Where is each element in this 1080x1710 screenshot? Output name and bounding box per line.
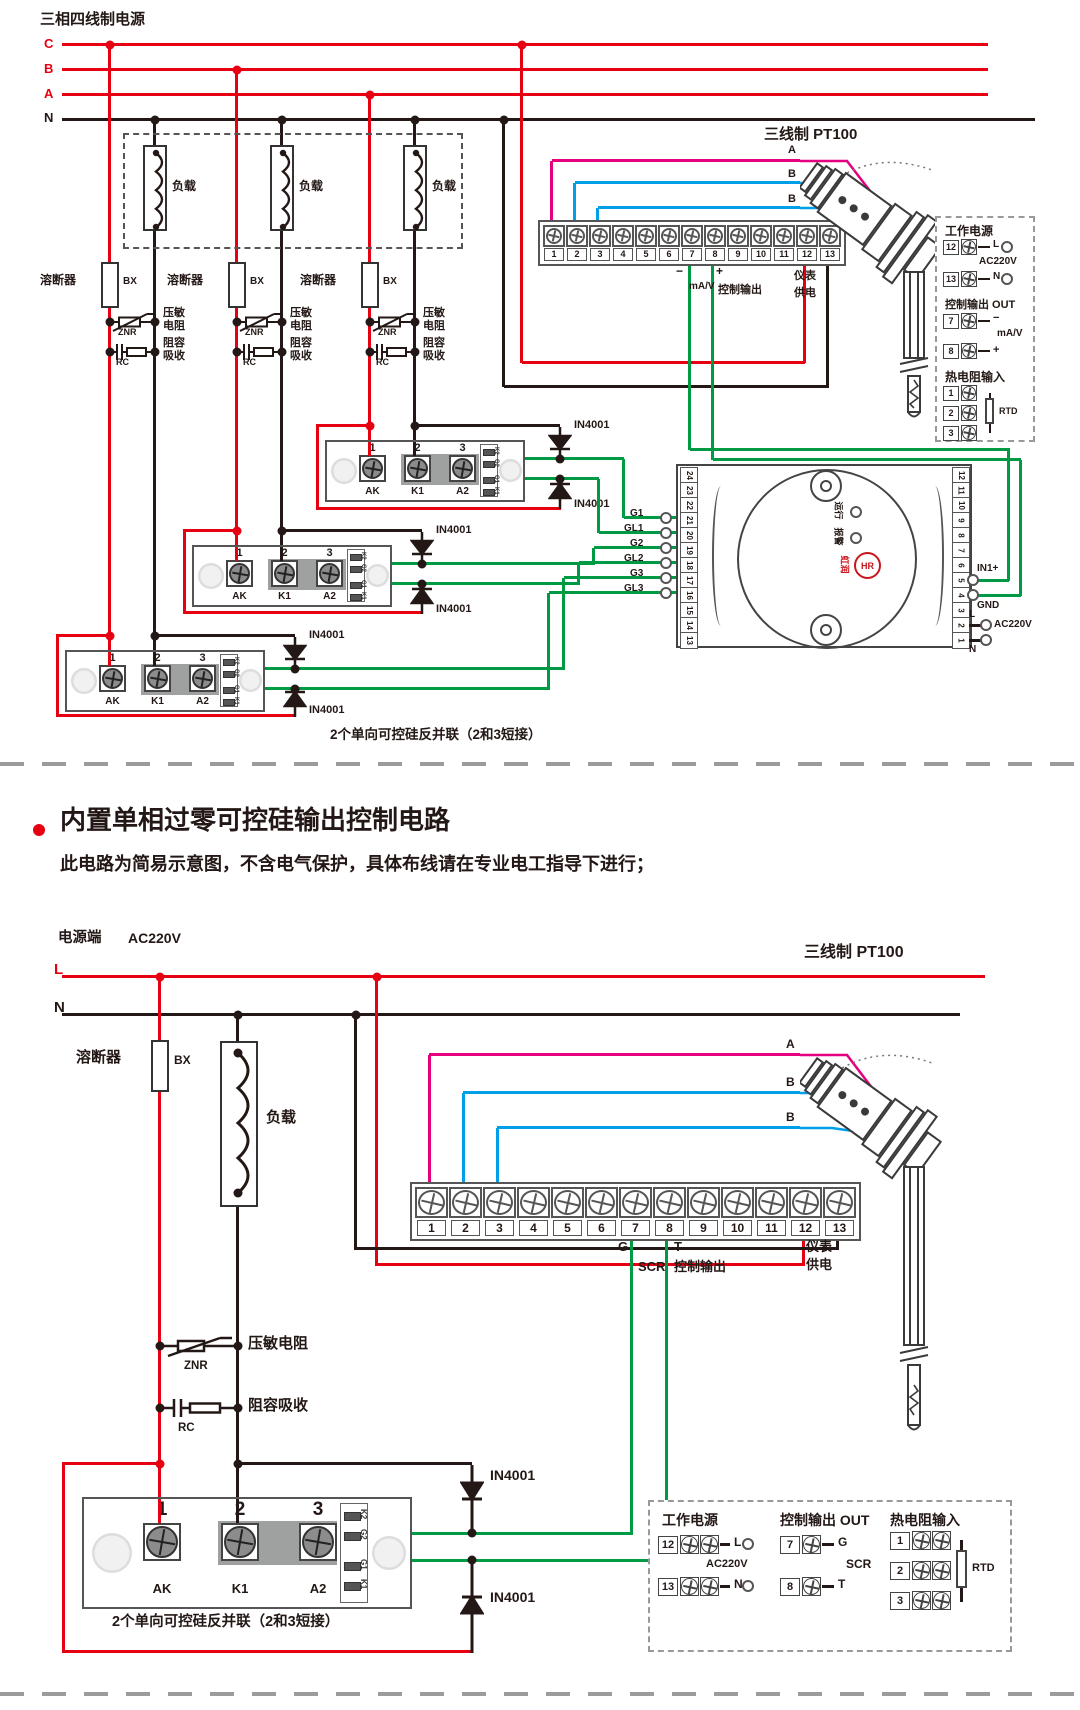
screw-terminal-icon — [612, 225, 634, 247]
screw-terminal-icon — [359, 455, 386, 482]
wire-segment — [280, 230, 283, 545]
varistor-tag: ZNR — [118, 327, 137, 337]
wire-segment — [316, 424, 370, 427]
wire-phase-b — [62, 68, 988, 71]
screw-terminal-icon — [415, 1187, 448, 1218]
legend-out-title: 控制输出 OUT — [780, 1510, 869, 1530]
screw-terminal-icon — [619, 1187, 652, 1218]
fuse-label: 溶断器 — [40, 274, 76, 287]
section-subtitle: 此电路为简易示意图，不含电气保护，具体布线请在专业电工指导下进行； — [60, 854, 654, 874]
panel-bracket — [924, 486, 944, 626]
varistor-label: 压敏 — [163, 307, 185, 319]
screw-terminal-icon — [961, 405, 977, 421]
legend-terminal-number: 1 — [943, 386, 959, 401]
gate-pin-label: K1 — [233, 697, 239, 705]
legend-panel: 工作电源 12 L AC220V 13 N 控制输出 OUT 7 − mA/V … — [935, 216, 1035, 442]
wire-segment — [977, 579, 1009, 582]
gate-pin-label: G2 — [359, 1529, 368, 1540]
controller-terminal: 20 — [681, 528, 697, 543]
controller-terminal: 18 — [681, 558, 697, 573]
top-diagram-title: 三相四线制电源 — [40, 12, 145, 29]
neutral-label: N — [44, 111, 53, 126]
terminal: 1 — [415, 1187, 448, 1236]
fuse-label: 溶断器 — [300, 274, 336, 287]
mount-hole — [71, 668, 97, 694]
wire-segment — [360, 562, 594, 565]
inductor-coil-icon — [271, 147, 295, 233]
mount-hole — [198, 563, 224, 589]
junction-dot — [106, 41, 115, 50]
legend-terminal-number: 7 — [780, 1536, 800, 1554]
screw-terminal-icon — [226, 560, 253, 587]
gate-pin-label: K1 — [359, 1579, 368, 1589]
module-terminal-name: A2 — [316, 591, 343, 602]
wire-segment — [579, 561, 662, 564]
legend-n-label: N — [993, 271, 1000, 282]
legend-terminal-number: 1 — [890, 1532, 910, 1550]
module-terminal-number: 3 — [189, 652, 216, 664]
output-plus-label: + — [716, 265, 723, 278]
wire-segment — [354, 1015, 357, 1250]
module-terminal-number: 1 — [359, 442, 386, 454]
screw-terminal-icon — [912, 1591, 931, 1610]
controller-terminal: 19 — [681, 543, 697, 558]
terminal-number: 6 — [659, 248, 679, 261]
junction-dot — [418, 580, 427, 589]
terminal: 7 — [619, 1187, 652, 1236]
screw-terminal-icon — [961, 425, 977, 441]
gate-connector — [660, 587, 672, 599]
gate-label: G3 — [630, 568, 643, 579]
module-terminal-name: AK — [143, 1581, 181, 1596]
varistor-label: 压敏电阻 — [248, 1336, 308, 1353]
gate-pin-label: G2 — [233, 669, 239, 677]
wire-segment — [822, 1543, 834, 1546]
wire-segment — [978, 278, 990, 280]
sensor-wire-label: A — [788, 144, 796, 156]
wire-live — [62, 975, 985, 978]
junction-dot — [556, 455, 565, 464]
legend-plus: + — [993, 344, 999, 356]
controller-terminal: 2 — [953, 618, 969, 633]
wire-segment — [413, 230, 416, 440]
connector — [980, 619, 992, 631]
sensor-wire-label: B — [788, 168, 796, 180]
fuse-icon — [361, 262, 379, 308]
wire-segment — [622, 459, 625, 518]
terminal-number: 7 — [621, 1220, 650, 1236]
junction-dot — [468, 1529, 477, 1538]
junction-dot — [278, 348, 287, 357]
terminal: 3 — [589, 225, 611, 261]
module-terminal-number: 2 — [221, 1499, 259, 1521]
junction-dot — [411, 422, 420, 431]
junction-dot — [151, 116, 160, 125]
junction-dot — [234, 1342, 243, 1351]
terminal: 5 — [635, 225, 657, 261]
terminal: 11 — [773, 225, 795, 261]
wire-segment — [316, 427, 319, 509]
legend-terminal-number: 8 — [943, 344, 959, 359]
gate-pin-label: G2 — [493, 459, 499, 467]
diode-label: IN4001 — [490, 1590, 535, 1606]
wire-segment — [62, 1465, 65, 1653]
controller-terminal: 1 — [953, 633, 969, 648]
mount-hole — [366, 564, 389, 587]
screw-terminal-icon — [543, 225, 565, 247]
terminal-number: 9 — [689, 1220, 718, 1236]
screw-terminal-icon — [802, 1577, 821, 1596]
scr-module: 1 2 3 AK K1 A2 K2 G2 G1 K1 — [65, 650, 265, 712]
wire-segment — [428, 1055, 431, 1182]
sensor-wire-label: B — [786, 1111, 795, 1124]
screw-terminal-icon — [721, 1187, 754, 1218]
legend-terminal-number: 2 — [943, 406, 959, 421]
module-terminal-name: K1 — [144, 696, 171, 707]
fuse-tag: BX — [383, 276, 397, 287]
controller-terminal: 21 — [681, 513, 697, 528]
screw-terminal-icon — [585, 1187, 618, 1218]
gate-connector — [660, 542, 672, 554]
varistor-tag: ZNR — [184, 1360, 208, 1373]
terminal-number: 3 — [485, 1220, 514, 1236]
wire-segment — [502, 120, 505, 387]
legend-minus: − — [993, 312, 999, 324]
screw-terminal-icon — [221, 1523, 259, 1561]
wire-segment — [564, 576, 662, 579]
screw-terminal-icon — [517, 1187, 550, 1218]
scr-module: 1 2 3 AK K1 A2 K2 G2 G1 K1 — [82, 1497, 412, 1609]
legend-rtd-title: 热电阻输入 — [890, 1510, 960, 1530]
controller-terminal: 7 — [953, 543, 969, 558]
junction-dot — [373, 973, 382, 982]
gate-label: GL3 — [624, 583, 643, 594]
load-3 — [403, 145, 427, 231]
screw-terminal-icon — [681, 225, 703, 247]
junction-dot — [366, 348, 375, 357]
module-terminal-number: 3 — [316, 547, 343, 559]
rc-label: 阻容 — [423, 337, 445, 349]
screw-terminal-icon — [961, 239, 977, 255]
mount-hole — [239, 669, 262, 692]
junction-dot — [234, 1460, 243, 1469]
brand-logo: HR — [854, 552, 881, 579]
wire-segment — [429, 1053, 800, 1056]
legend-terminal-number: 13 — [658, 1578, 678, 1596]
ac220v-label: AC220V — [994, 619, 1032, 630]
controller-left-terminals: 242322212019181716151413 — [680, 467, 698, 649]
controller-terminal: 13 — [681, 633, 697, 648]
junction-dot — [156, 1460, 165, 1469]
gate-pin-label: K2 — [360, 552, 366, 560]
fuse-icon — [151, 1040, 169, 1092]
wire-neutral — [62, 1013, 960, 1016]
terminal-number: 1 — [417, 1220, 446, 1236]
controller-terminal: 10 — [953, 498, 969, 513]
screw-terminal-icon — [299, 1523, 337, 1561]
terminal: 2 — [566, 225, 588, 261]
wire-segment — [235, 547, 238, 561]
module-terminal-number: 3 — [299, 1499, 337, 1521]
junction-dot — [411, 318, 420, 327]
module-terminal-number: 3 — [449, 442, 476, 454]
gate-label: G1 — [630, 508, 643, 519]
phase-b-label: B — [44, 62, 53, 77]
legend-terminal-number: 13 — [943, 272, 959, 287]
legend-scr-label: SCR — [846, 1558, 871, 1571]
terminal-number: 2 — [567, 248, 587, 261]
gate-pin-label: G1 — [360, 580, 366, 588]
gate-pin-label: K1 — [493, 487, 499, 495]
rc-label: 吸收 — [163, 350, 185, 362]
controller-terminal: 9 — [953, 513, 969, 528]
legend-unit: mA/V — [997, 328, 1023, 339]
phase-a-label: A — [44, 87, 53, 102]
junction-dot — [291, 665, 300, 674]
controller-right-terminals: 121110987654321 — [952, 467, 970, 649]
load-2 — [270, 145, 294, 231]
wire-segment — [280, 547, 283, 561]
module-terminal-name: AK — [226, 591, 253, 602]
wire-segment — [630, 1237, 633, 1535]
screw-terminal-icon — [727, 225, 749, 247]
wire-segment — [183, 532, 186, 613]
junction-dot — [106, 348, 115, 357]
fuse-tag: BX — [250, 276, 264, 287]
legend-terminal-number: 12 — [658, 1536, 678, 1554]
rc-label: 阻容吸收 — [248, 1398, 308, 1415]
diode-icon — [410, 584, 434, 614]
gate-label: G2 — [630, 538, 643, 549]
junction-dot — [233, 527, 242, 536]
screw-terminal-icon — [750, 225, 772, 247]
screw-terminal-icon — [961, 271, 977, 287]
gate-terminal-strip: K2 G2 G1 K1 — [347, 549, 365, 602]
screw-terminal-icon — [755, 1187, 788, 1218]
pt100-sensor-icon — [800, 1035, 1080, 1455]
legend-l-label: L — [734, 1536, 741, 1549]
inductor-coil-icon — [144, 147, 168, 233]
wire-segment — [720, 1585, 730, 1588]
wire-segment — [575, 181, 800, 184]
screw-terminal-icon — [961, 313, 977, 329]
wire-segment — [153, 652, 156, 666]
rc-label: 吸收 — [290, 350, 312, 362]
legend-terminal-number: 3 — [890, 1592, 910, 1610]
legend-t-label: T — [838, 1578, 845, 1591]
control-output-label: 控制输出 — [674, 1260, 726, 1275]
junction-dot — [156, 1404, 165, 1413]
wire-segment — [233, 667, 564, 670]
terminal: 5 — [551, 1187, 584, 1236]
sensor-wire-label: B — [786, 1076, 795, 1089]
wire-segment — [183, 529, 237, 532]
terminal: 4 — [612, 225, 634, 261]
rc-label: 阻容 — [163, 337, 185, 349]
varistor-icon — [160, 1333, 238, 1359]
load-label: 负载 — [432, 180, 456, 193]
legend-terminal-number: 3 — [943, 426, 959, 441]
terminal-block: 1 2 3 4 5 6 7 8 9 10 — [410, 1182, 861, 1241]
junction-dot — [233, 348, 242, 357]
junction-dot — [556, 475, 565, 484]
gate-pin-label: K2 — [359, 1509, 368, 1519]
junction-dot — [234, 1404, 243, 1413]
terminal-number: 10 — [723, 1220, 752, 1236]
gate-pin-label: K1 — [360, 592, 366, 600]
wire-segment — [594, 546, 662, 549]
wire-segment — [978, 246, 990, 248]
t-label: T — [674, 1240, 682, 1255]
rtd-resistor-icon — [985, 398, 994, 424]
legend-rtd-label: RTD — [972, 1562, 995, 1574]
inductor-coil-icon — [404, 147, 428, 233]
screw-terminal-icon — [551, 1187, 584, 1218]
scr-label: SCR — [638, 1260, 665, 1275]
fuse-label: 溶断器 — [167, 274, 203, 287]
wire-segment — [368, 442, 371, 456]
gate-connector — [660, 572, 672, 584]
screw-terminal-icon — [316, 560, 343, 587]
terminal-number: 11 — [774, 248, 794, 261]
n-label: N — [969, 644, 976, 655]
wire-segment — [496, 1128, 499, 1182]
gate-pin-label: G1 — [359, 1559, 368, 1570]
diode-label: IN4001 — [490, 1468, 535, 1484]
section-divider — [0, 762, 1080, 766]
wire-segment — [1019, 460, 1022, 596]
wire-segment — [597, 479, 600, 533]
terminal-number: 7 — [682, 248, 702, 261]
wire-segment — [713, 458, 1021, 461]
varistor-label: 压敏 — [423, 307, 445, 319]
wire-segment — [547, 593, 550, 690]
gate-connector — [660, 557, 672, 569]
diode-label: IN4001 — [574, 498, 609, 510]
wire-segment — [377, 1263, 804, 1266]
controller-terminal: 22 — [681, 498, 697, 513]
screw-terminal-icon — [404, 455, 431, 482]
junction-dot — [411, 348, 420, 357]
wire-neutral — [62, 118, 1035, 121]
run-led — [850, 506, 862, 518]
module-terminal-name: K1 — [221, 1581, 259, 1596]
control-output-label: 控制输出 — [718, 284, 762, 296]
source-value: AC220V — [128, 931, 181, 947]
junction-dot — [151, 632, 160, 641]
varistor-tag: ZNR — [245, 327, 264, 337]
connector — [980, 634, 992, 646]
wire-segment — [153, 230, 156, 650]
terminal-number: 2 — [451, 1220, 480, 1236]
output-unit-label: mA/V — [689, 281, 715, 292]
terminal: 6 — [658, 225, 680, 261]
wire-segment — [155, 634, 295, 637]
screw-terminal-icon — [802, 1535, 821, 1554]
sensor-wire-label: B — [788, 193, 796, 205]
junction-dot — [233, 66, 242, 75]
in1-label: IN1+ — [977, 563, 998, 574]
rc-tag: RC — [243, 357, 256, 367]
terminal: 9 — [687, 1187, 720, 1236]
terminal: 10 — [721, 1187, 754, 1236]
controller-terminal: 6 — [953, 558, 969, 573]
connector — [742, 1580, 754, 1592]
wire-segment — [822, 1585, 834, 1588]
screw-terminal-icon — [961, 343, 977, 359]
screw-terminal-icon — [658, 225, 680, 247]
wire-segment — [282, 529, 422, 532]
sensor-wire-label: A — [786, 1038, 795, 1051]
g-label: G — [618, 1240, 628, 1255]
junction-dot — [106, 632, 115, 641]
phase-c-label: C — [44, 37, 53, 52]
rc-label: 阻容 — [290, 337, 312, 349]
scr-module: 1 2 3 AK K1 A2 K2 G2 G1 K1 — [325, 440, 525, 502]
screw-terminal-icon — [680, 1535, 699, 1554]
wire-segment — [183, 611, 423, 614]
controller-terminal: 12 — [953, 468, 969, 483]
diode-label: IN4001 — [436, 603, 471, 615]
wiring-diagram-page: 三相四线制电源 C B A N 负载 负载 负载 溶断器 溶断器 溶断器 BX … — [0, 0, 1080, 1710]
legend-rtd-title: 热电阻输入 — [945, 368, 1005, 385]
legend-terminal-number: 7 — [943, 314, 959, 329]
run-led-label: 运行 — [833, 501, 846, 519]
controller-terminal: 23 — [681, 483, 697, 498]
gate-connector — [660, 512, 672, 524]
wire-segment — [522, 361, 805, 364]
screw-head-icon — [820, 624, 832, 636]
bullet-icon — [33, 824, 45, 836]
screw-terminal-icon — [483, 1187, 516, 1218]
source-label: 电源端 — [58, 930, 102, 946]
diode-label: IN4001 — [574, 419, 609, 431]
module-terminal-name: K1 — [404, 486, 431, 497]
screw-terminal-icon — [932, 1561, 951, 1580]
terminal: 7 — [681, 225, 703, 261]
varistor-label: 电阻 — [290, 320, 312, 332]
junction-dot — [352, 1011, 361, 1020]
gate-pin-label: K2 — [233, 657, 239, 665]
wire-segment — [56, 637, 59, 717]
rc-snubber-icon — [160, 1395, 238, 1421]
junction-dot — [500, 116, 509, 125]
fuse-icon — [228, 262, 246, 308]
load-label: 负载 — [299, 180, 323, 193]
screw-terminal-icon — [589, 225, 611, 247]
module-terminal-name: A2 — [299, 1581, 337, 1596]
junction-dot — [468, 1556, 477, 1565]
legend-terminal-number: 12 — [943, 240, 959, 255]
wire-segment — [598, 206, 800, 209]
wire-segment — [360, 582, 579, 585]
wire-segment — [550, 161, 553, 222]
wire-segment — [573, 183, 576, 222]
screw-terminal-icon — [912, 1561, 931, 1580]
gate-label: GL1 — [624, 523, 643, 534]
screw-terminal-icon — [700, 1535, 719, 1554]
panel-bracket — [712, 486, 732, 626]
section-divider — [0, 1692, 1080, 1696]
junction-dot — [366, 318, 375, 327]
terminal-number: 8 — [655, 1220, 684, 1236]
wire-segment — [375, 977, 378, 1266]
rc-tag: RC — [116, 357, 129, 367]
junction-dot — [278, 318, 287, 327]
module-terminal-name: A2 — [189, 696, 216, 707]
section-title: 内置单相过零可控硅输出控制电路 — [60, 806, 450, 835]
wire-segment — [236, 1499, 239, 1523]
